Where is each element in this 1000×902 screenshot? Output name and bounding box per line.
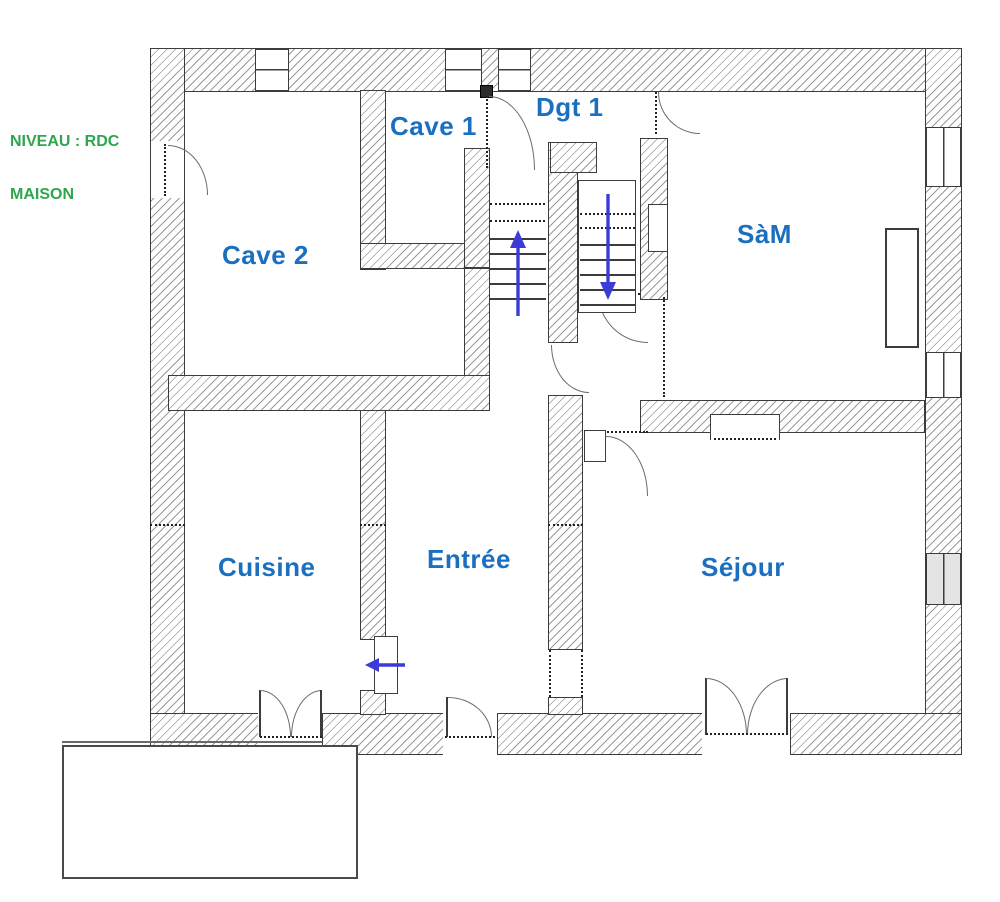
stair-up-dotted-1 — [490, 203, 545, 205]
opening-hall-dotted-right — [581, 650, 583, 697]
room-label-cuisine: Cuisine — [218, 552, 315, 583]
door-line-sejour — [600, 431, 648, 433]
window — [926, 352, 961, 398]
outer-wall-bottom-seg3 — [497, 713, 704, 755]
window — [926, 127, 961, 187]
level-label: NIVEAU : RDC MAISON — [10, 103, 119, 235]
door-arc-sejour-left — [706, 678, 747, 735]
door-arc-cuisine-left — [260, 690, 291, 737]
wall-cave2-bottom — [168, 375, 490, 411]
opening-hall-dotted-left — [549, 650, 551, 697]
window — [255, 49, 289, 91]
window — [926, 553, 961, 605]
sam-wall-niche — [648, 204, 668, 252]
wall-entree-sejour-upper — [548, 395, 583, 650]
annex-top-edge — [62, 741, 322, 743]
door-leaf-sejour-right — [786, 678, 788, 735]
door-arc-cave2 — [168, 145, 208, 195]
room-label-dgt-1: Dgt 1 — [536, 92, 604, 123]
annex-terrace — [62, 745, 358, 879]
door-arc-sam — [658, 92, 700, 134]
room-label-sam: SàM — [737, 219, 792, 250]
room-label-cave-1: Cave 1 — [390, 111, 477, 142]
level-label-line1: NIVEAU : RDC — [10, 129, 119, 155]
wall-entree-sejour-lower — [548, 697, 583, 715]
door-arc-cuisine-right — [291, 690, 322, 737]
room-label-sejour: Séjour — [701, 552, 785, 583]
stairs-up-arrow-icon — [506, 228, 530, 320]
door-arc-sejour-right — [747, 678, 788, 735]
stairs-down-arrow-icon — [596, 190, 620, 302]
sejour-wall-niche — [710, 414, 780, 440]
door-arc-cave1 — [489, 96, 535, 170]
door-line-cave2 — [164, 144, 166, 196]
outer-wall-bottom-seg4 — [790, 713, 962, 755]
opening-hall-wall — [548, 650, 583, 697]
door-arc-sejour — [606, 436, 648, 496]
opening-sam-hall — [663, 297, 665, 397]
room-label-entree: Entrée — [427, 544, 511, 575]
room-label-cave-2: Cave 2 — [222, 240, 309, 271]
stair-up-dotted-2 — [490, 220, 545, 222]
door-threshold-cuisine — [260, 736, 322, 738]
section-line-left-wall — [150, 524, 185, 526]
door-leaf-sejour — [584, 430, 606, 462]
wall-sam-sejour — [640, 400, 925, 433]
sam-chimney — [885, 228, 919, 348]
door-threshold-entree — [445, 736, 495, 738]
section-line-cuisine-wall — [360, 524, 386, 526]
window — [445, 49, 482, 91]
door-leaf-cuisine-right — [320, 690, 322, 737]
passage-left-arrow-icon — [363, 654, 407, 676]
door-arc-entree — [448, 697, 492, 737]
section-line-hall-wall — [548, 524, 583, 526]
door-line-cave1 — [486, 96, 488, 168]
door-line-sam — [655, 92, 657, 134]
wall-dgt1-notch — [550, 142, 597, 173]
floor-plan: NIVEAU : RDC MAISON Cave 2 Cave 1 Dgt 1 … — [0, 0, 1000, 902]
level-label-line2: MAISON — [10, 182, 119, 208]
door-threshold-sejour — [706, 733, 788, 735]
window — [498, 49, 531, 91]
sejour-niche-opening — [714, 438, 776, 440]
